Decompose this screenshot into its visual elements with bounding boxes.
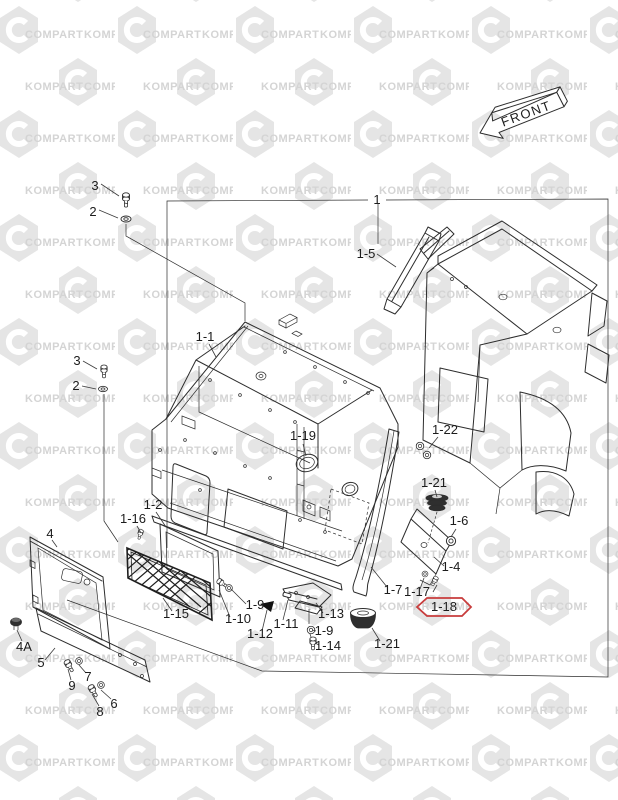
callout-4A: 4A (16, 639, 32, 654)
callout-2a: 2 (89, 204, 96, 219)
callout-1-14: 1-14 (315, 638, 341, 653)
callout-7: 7 (84, 669, 91, 684)
callout-1-13: 1-13 (318, 606, 344, 621)
callout-4: 4 (46, 526, 53, 541)
callout-1-22: 1-22 (432, 422, 458, 437)
callout-2b: 2 (72, 378, 79, 393)
callout-1-19: 1-19 (290, 428, 316, 443)
washer-1-17 (422, 571, 428, 577)
callout-1-16: 1-16 (120, 511, 146, 526)
washer-1-6 (446, 536, 455, 545)
callout-1-21u: 1-21 (421, 475, 447, 490)
callout-1-2: 1-2 (144, 497, 163, 512)
callout-1-17: 1-17 (404, 584, 430, 599)
callout-1-6: 1-6 (450, 513, 469, 528)
highlight-label: 1-18 (431, 599, 457, 614)
washer-7 (76, 658, 83, 665)
washer-2-left (99, 386, 108, 391)
callout-8: 8 (96, 704, 103, 719)
callout-1-12: 1-12 (247, 626, 273, 641)
callout-1-7: 1-7 (384, 582, 403, 597)
callout-9: 9 (68, 678, 75, 693)
parts-diagram: COMPART KOMPART KOMPART COMPART (0, 0, 618, 800)
washer-6 (98, 682, 105, 689)
callout-3b: 3 (73, 353, 80, 368)
callout-1-5: 1-5 (357, 246, 376, 261)
callout-6: 6 (110, 696, 117, 711)
callout-5: 5 (37, 655, 44, 670)
callout-1-11: 1-11 (273, 616, 298, 631)
washer-2-top (121, 216, 131, 222)
callout-1: 1 (373, 192, 380, 207)
callout-1-9b: 1-9 (315, 623, 334, 638)
callout-1-9a: 1-9 (246, 597, 265, 612)
callout-1-10: 1-10 (225, 611, 251, 626)
grommet-1-21-lower (351, 609, 376, 629)
callout-1-1: 1-1 (196, 329, 215, 344)
callout-1-15: 1-15 (163, 606, 189, 621)
washer-1-10 (226, 585, 233, 592)
parts-diagram-page: COMPART KOMPART KOMPART COMPART (0, 0, 618, 800)
callout-3a: 3 (91, 178, 98, 193)
callout-1-21l: 1-21 (374, 636, 400, 651)
callout-1-4: 1-4 (442, 559, 461, 574)
